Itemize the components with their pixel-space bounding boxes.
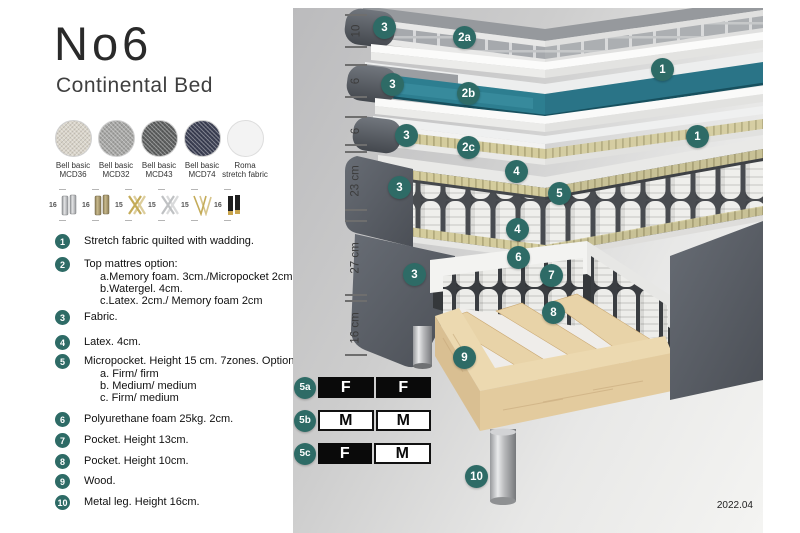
ruler-tick [345,144,367,146]
page-title: No6 [54,16,152,71]
legend-subitem: b. Medium/ medium [100,381,297,393]
leg-cylinder-silver-icon [59,188,82,222]
callout-6: 6 [507,246,530,269]
fabric-swatch-name: Bell basic [142,161,176,170]
legend-item-9: 9 Wood. [55,474,290,489]
legend-text: Top mattres option: [84,257,293,272]
dimension-segment: 10 [339,14,373,48]
legend-text: Latex. 4cm. [84,335,141,350]
legend-number-badge: 4 [55,335,70,350]
legend-item-7: 7 Pocket. Height 13cm. [55,433,290,448]
fabric-swatch-code: MCD36 [59,170,86,179]
fabric-swatch: Roma stretch fabric [225,120,265,179]
callout-3: 3 [388,176,411,199]
firmness-badge: 5c [294,443,316,465]
ruler-tick [345,14,367,16]
legend-number-badge: 2 [55,257,70,272]
legend-text: Metal leg. Height 16cm. [84,495,200,510]
fabric-swatch-name: Bell basic [185,161,219,170]
callout-3: 3 [381,73,404,96]
legend-item-2: 2 Top mattres option: a.Memory foam. 3cm… [55,257,290,307]
callout-4: 4 [506,218,529,241]
firmness-row-5c: 5c F M [294,442,431,465]
dimension-label: 10 [350,25,362,38]
firmness-row-5b: 5b M M [294,409,431,432]
firmness-cell: F [318,443,372,464]
callout-4: 4 [505,160,528,183]
legend-text: Fabric. [84,310,118,325]
legend-text: Stretch fabric quilted with wadding. [84,234,254,249]
legend-number-badge: 3 [55,310,70,325]
leg-option: 16 [49,188,82,222]
dimension-label: 23 cm [350,165,362,196]
firmness-cell: F [376,377,432,398]
leg-hairpin-gold-icon [191,188,214,222]
callout-3: 3 [373,16,396,39]
firmness-badge: 5a [294,377,316,399]
ruler-tick [345,96,367,98]
revision-date: 2022.04 [717,500,753,511]
fabric-swatch-circle [184,120,221,157]
dimension-label: 6 [350,128,362,134]
fabric-swatch-name: Bell basic [56,161,90,170]
leg-height: 15 [181,202,189,209]
fabric-swatch-name: Bell basic [99,161,133,170]
leg-height: 16 [49,202,57,209]
legend-number-badge: 8 [55,454,70,469]
legend-text: Micropocket. Height 15 cm. 7zones. Optio… [84,354,297,369]
ruler-tick [345,294,367,296]
fabric-swatch-circle [98,120,135,157]
leg-cylinder-brass-icon [92,188,115,222]
dimension-segment: 27 cm [339,220,373,296]
dimension-label: 16 cm [350,312,362,343]
callout-5: 5 [548,182,571,205]
ruler-tick [345,151,367,153]
legend-item-3: 3 Fabric. [55,310,290,325]
fabric-swatch-code: MCD43 [145,170,172,179]
legend-subitem: b.Watergel. 4cm. [100,284,293,296]
legend-subitem: c.Latex. 2cm./ Memory foam 2cm [100,296,293,308]
leg-cross-silver-icon [158,188,181,222]
fabric-swatch-code: MCD74 [188,170,215,179]
fabric-swatch: Bell basic MCD43 [139,120,179,179]
legend-number-badge: 9 [55,474,70,489]
firmness-cell: M [374,443,432,464]
callout-3: 3 [403,263,426,286]
legend-item-10: 10 Metal leg. Height 16cm. [55,495,290,510]
ruler-tick [345,220,367,222]
callout-9: 9 [453,346,476,369]
legend-number-badge: 7 [55,433,70,448]
legend-number-badge: 1 [55,234,70,249]
ruler-tick [345,209,367,211]
legend-item-5: 5 Micropocket. Height 15 cm. 7zones. Opt… [55,354,290,404]
leg-option: 16 [82,188,115,222]
legend-item-8: 8 Pocket. Height 10cm. [55,454,290,469]
leg-height: 16 [82,202,90,209]
dimension-segment: 23 cm [339,151,373,211]
dimension-label: 6 [350,78,362,84]
legend-number-badge: 10 [55,495,70,510]
legend-text: Wood. [84,474,116,489]
fabric-swatch-row: Bell basic MCD36 Bell basic MCD32 Bell b… [53,120,265,179]
firmness-cell: M [376,410,432,431]
leg-cylinder-black-gold-icon [224,188,247,222]
ruler-tick [345,354,367,356]
exploded-bed-diagram: 10 6 6 23 cm 27 cm 16 cm 3 [293,8,763,533]
ruler-tick [345,46,367,48]
fabric-swatch-circle [55,120,92,157]
ruler-tick [345,300,367,302]
leg-options-row: 16 16 15 [49,188,247,222]
dimension-segment: 6 [339,64,373,98]
fabric-swatch-circle [141,120,178,157]
leg-option: 15 [181,188,214,222]
firmness-row-5a: 5a F F [294,376,431,399]
leg-option: 15 [115,188,148,222]
callout-3: 3 [395,124,418,147]
legend-text: Polyurethane foam 25kg. 2cm. [84,412,233,427]
fabric-swatch: Bell basic MCD74 [182,120,222,179]
firmness-badge: 5b [294,410,316,432]
fabric-swatch-name: Roma [234,161,255,170]
fabric-swatch-circle [227,120,264,157]
fabric-swatch-code: MCD32 [102,170,129,179]
legend-item-6: 6 Polyurethane foam 25kg. 2cm. [55,412,290,427]
firmness-cells: F F [318,377,431,398]
fabric-swatch: Bell basic MCD32 [96,120,136,179]
callout-7: 7 [540,264,563,287]
firmness-cell: M [318,410,374,431]
page-subtitle: Continental Bed [56,74,213,98]
callout-2c: 2c [457,136,480,159]
leg-option: 16 [214,188,247,222]
firmness-cells: M M [318,410,431,431]
legend-item-1: 1 Stretch fabric quilted with wadding. [55,234,290,249]
callout-8: 8 [542,301,565,324]
ruler-tick [345,64,367,66]
dimension-segment: 6 [339,116,373,146]
dimension-segment: 16 cm [339,300,373,356]
spec-sheet: No6 Continental Bed Bell basic MCD36 Bel… [0,0,800,533]
callout-1: 1 [686,125,709,148]
callout-1: 1 [651,58,674,81]
firmness-cell: F [318,377,374,398]
firmness-cells: F M [318,443,431,464]
legend-text: Pocket. Height 10cm. [84,454,189,469]
callout-2a: 2a [453,26,476,49]
leg-option: 15 [148,188,181,222]
legend-subitem: c. Firm/ medium [100,393,297,405]
legend-number-badge: 5 [55,354,70,369]
fabric-swatch-code: stretch fabric [222,170,268,179]
leg-height: 15 [115,202,123,209]
legend-text: Pocket. Height 13cm. [84,433,189,448]
callout-10: 10 [465,465,488,488]
info-column: No6 Continental Bed Bell basic MCD36 Bel… [0,0,293,533]
legend-number-badge: 6 [55,412,70,427]
dimension-label: 27 cm [350,242,362,273]
leg-height: 15 [148,202,156,209]
callout-2b: 2b [457,82,480,105]
fabric-swatch: Bell basic MCD36 [53,120,93,179]
ruler-tick [345,116,367,118]
leg-cross-gold-icon [125,188,148,222]
leg-height: 16 [214,202,222,209]
legend-item-4: 4 Latex. 4cm. [55,335,290,350]
